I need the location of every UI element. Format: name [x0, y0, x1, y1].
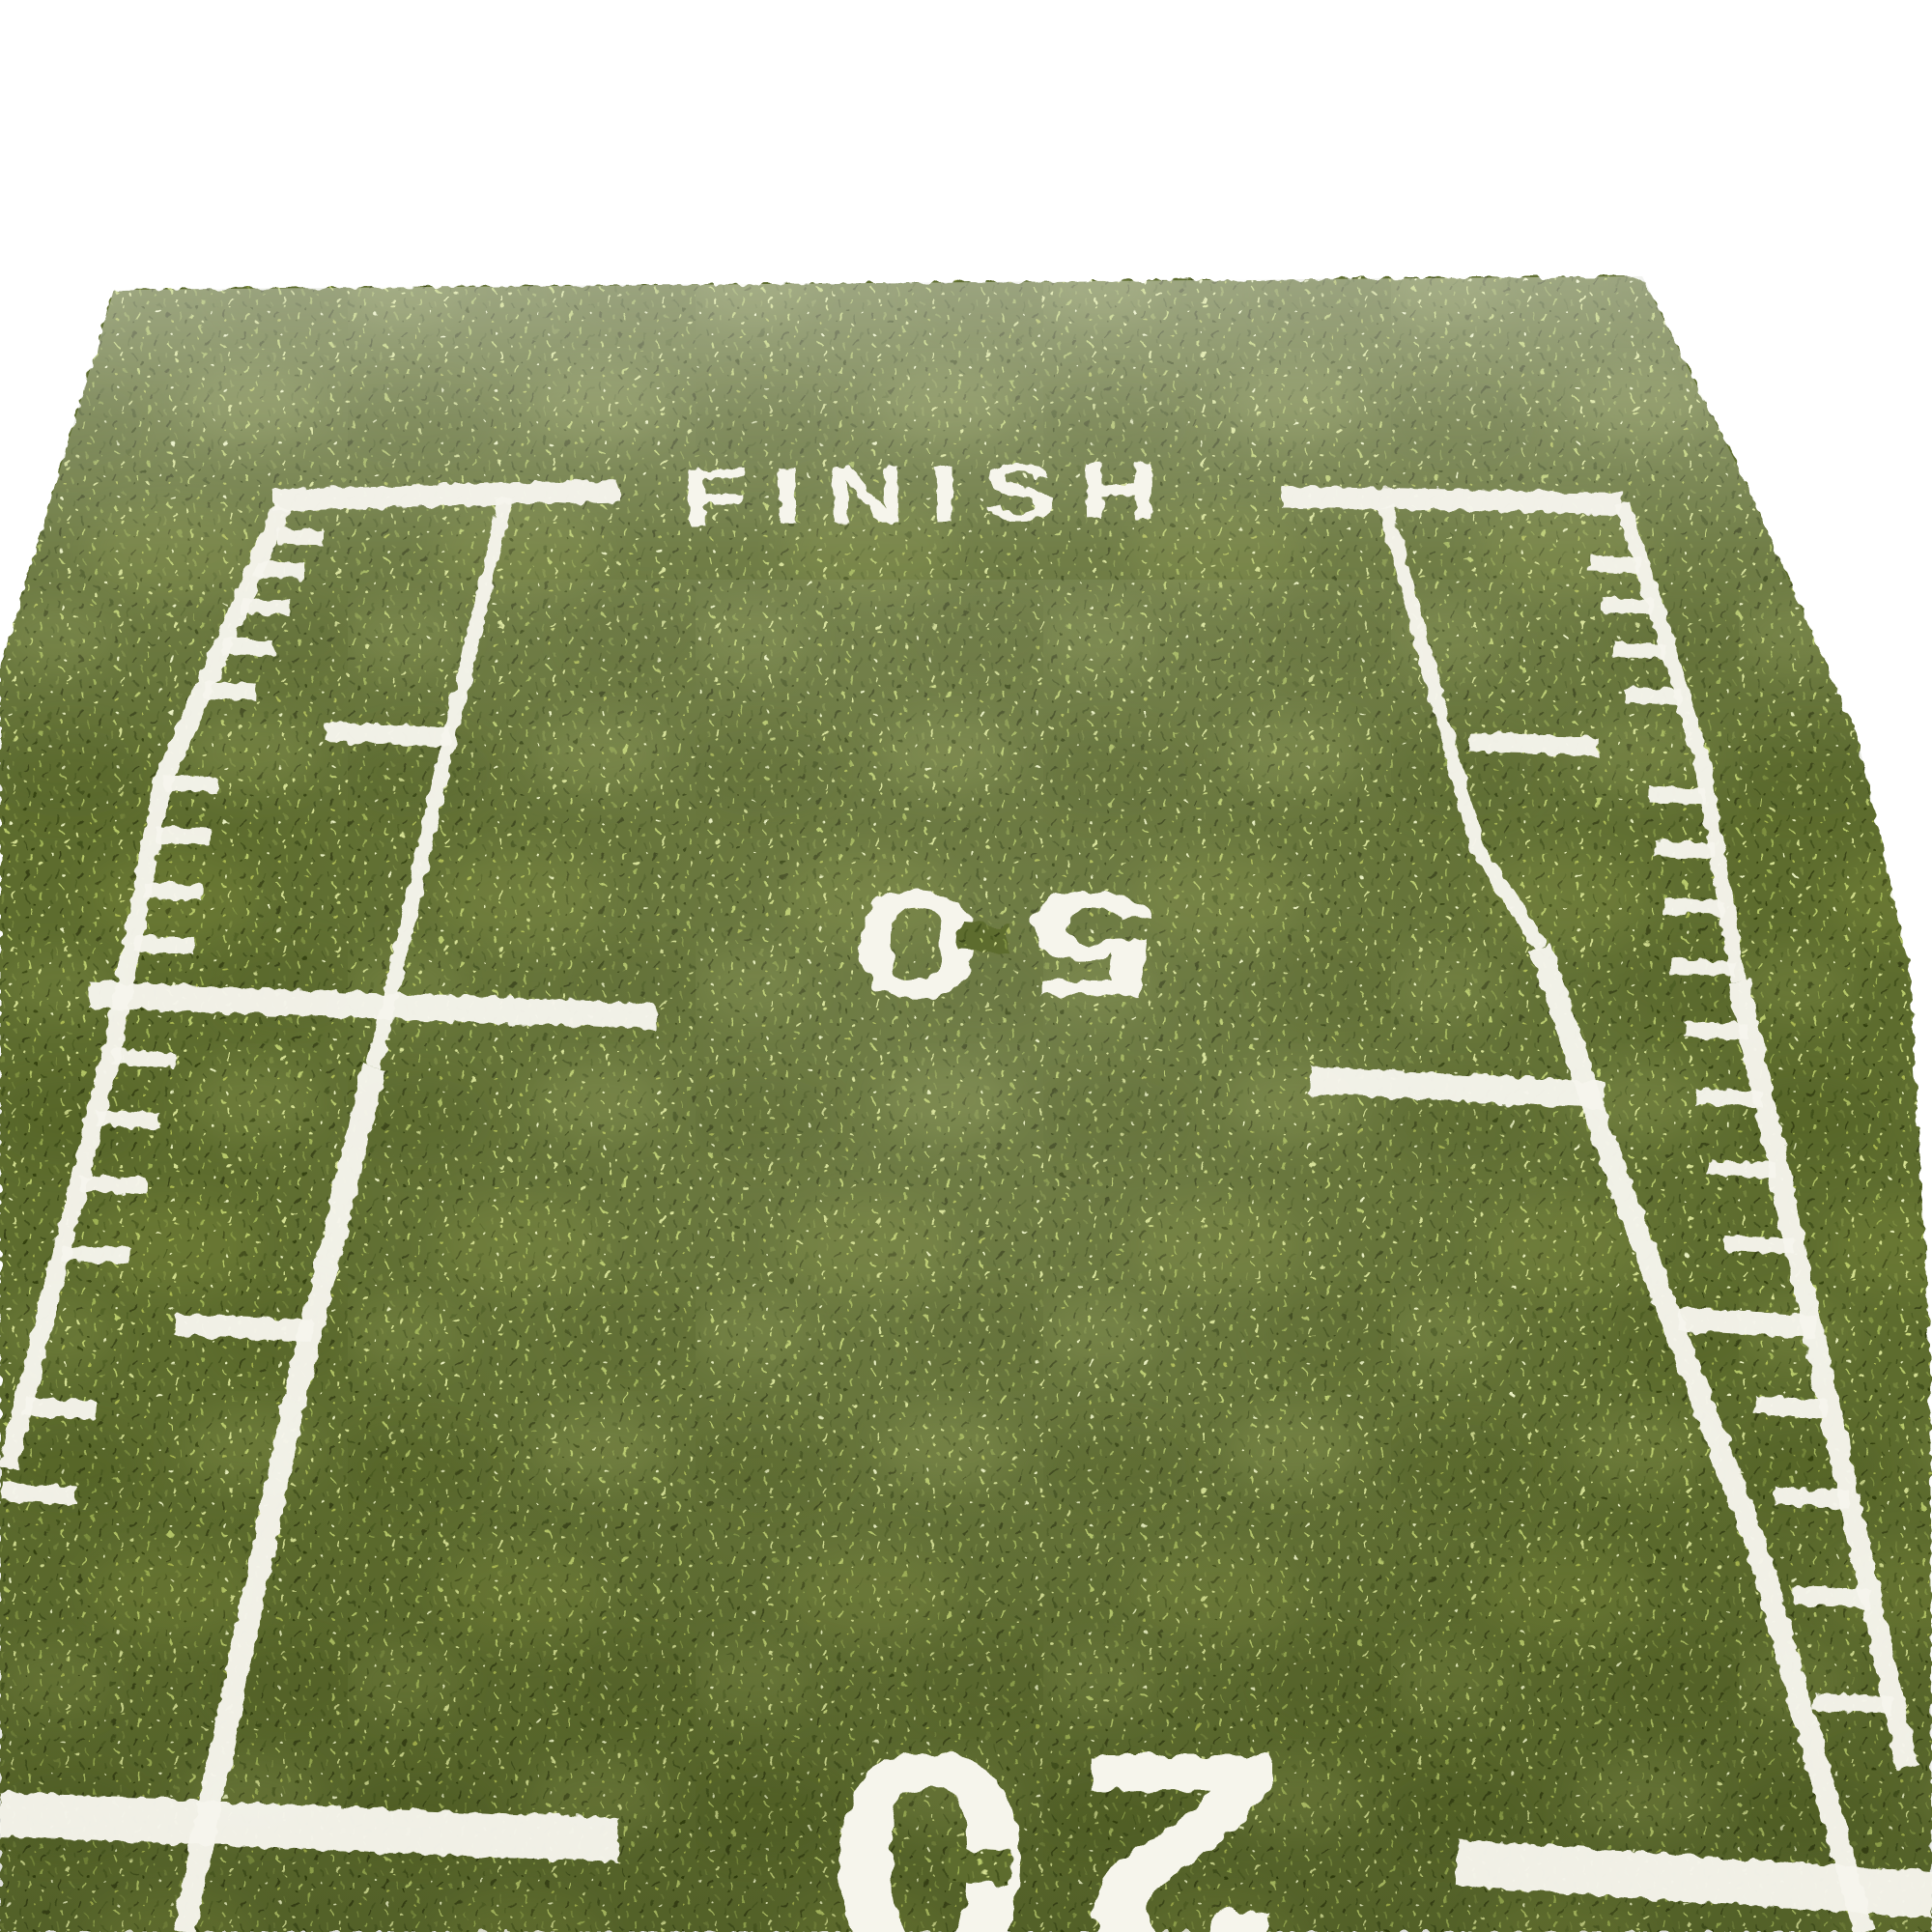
- finish-label: FINISH: [681, 445, 1182, 543]
- sprint-track-turf-scene: FINISH 50 20: [0, 0, 1932, 1932]
- distance-marker-20-group: 20: [782, 1688, 1285, 1932]
- finish-label-group: FINISH: [681, 445, 1182, 543]
- distance-marker-20: 20: [782, 1688, 1285, 1932]
- turf-product-photo: FINISH 50 20: [0, 0, 1932, 1932]
- stencil-notch-50: [959, 923, 1009, 952]
- stencil-notch-20: [947, 1847, 1010, 1884]
